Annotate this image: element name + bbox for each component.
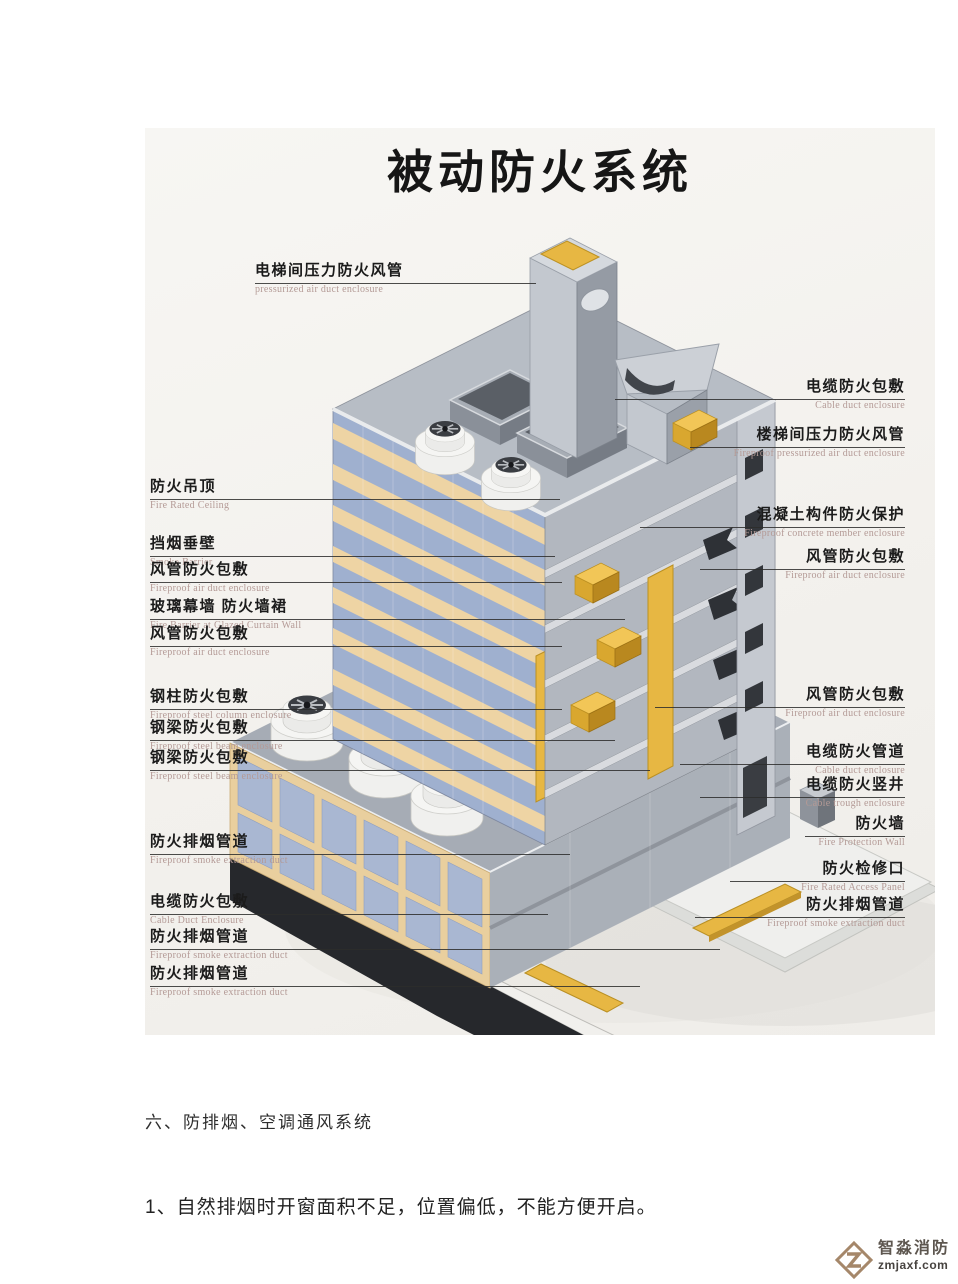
callout-label-en: Fireproof smoke extraction duct [150,950,288,961]
callout-label-en: Cable Duct Enclosure [150,915,249,926]
callout-label-en: Fireproof smoke extraction duct [150,855,288,866]
callout-label-zh: 风管防火包敷 [785,548,905,566]
callout-duct-enclosure-2: 风管防火包敷 Fireproof air duct enclosure [150,625,270,658]
callout-label-zh: 防火检修口 [801,860,905,878]
callout-label-en: Fire Rated Access Panel [801,882,905,893]
passive-fire-protection-diagram: 被动防火系统 [145,128,935,1035]
callout-duct-enclosure-right-2: 风管防火包敷 Fireproof air duct enclosure [785,686,905,719]
callout-label-en: Fireproof pressurized air duct enclosure [734,448,905,459]
callout-steel-column-enclosure: 钢柱防火包敷 Fireproof steel column enclosure [150,688,292,721]
callout-steel-beam-enclosure-1: 钢梁防火包敷 Fireproof steel beam enclosure [150,719,283,752]
callout-label-zh: 防火排烟管道 [150,965,288,983]
callout-smoke-duct-3: 防火排烟管道 Fireproof smoke extraction duct [150,965,288,998]
logo-name: 智淼消防 [878,1240,950,1258]
elevator-shaft [530,238,617,458]
callout-cable-duct-enclosure: 电缆防火包敷 Cable Duct Enclosure [150,893,249,926]
callout-label-zh: 挡烟垂壁 [150,535,216,553]
callout-label-zh: 风管防火包敷 [150,561,270,579]
section-heading: 六、防排烟、空调通风系统 [145,1108,373,1133]
callout-label-zh: 防火排烟管道 [150,833,288,851]
zm-diamond-icon [834,1240,874,1280]
logo-text: 智淼消防 zmjaxf.com [878,1240,950,1272]
callout-label-zh: 电缆防火包敷 [150,893,249,911]
callout-fire-wall: 防火墙 Fire Protection Wall [818,815,905,848]
callout-label-zh: 电缆防火竖井 [806,776,905,794]
callout-label-zh: 防火吊顶 [150,478,229,496]
callout-duct-enclosure-1: 风管防火包敷 Fireproof air duct enclosure [150,561,270,594]
callout-label-zh: 玻璃幕墙 防火墙裙 [150,598,301,616]
callout-label-en: Fire Protection Wall [818,837,905,848]
callout-label-zh: 钢梁防火包敷 [150,719,283,737]
callout-label-zh: 楼梯间压力防火风管 [734,426,905,444]
logo-site: zmjaxf.com [878,1258,950,1272]
callout-label-zh: 电缆防火包敷 [806,378,905,396]
callout-smoke-duct-1: 防火排烟管道 Fireproof smoke extraction duct [150,833,288,866]
callout-cable-fire-duct: 电缆防火管道 Cable duct enclosure [806,743,905,776]
callout-label-en: Fireproof smoke extraction duct [150,987,288,998]
callout-smoke-duct-2: 防火排烟管道 Fireproof smoke extraction duct [150,928,288,961]
callout-label-zh: 钢柱防火包敷 [150,688,292,706]
callout-label-en: Fire Rated Ceiling [150,500,229,511]
callout-label-en: Fireproof air duct enclosure [150,647,270,658]
callout-steel-beam-enclosure-2: 钢梁防火包敷 Fireproof steel beam enclosure [150,749,283,782]
section-item-1: 1、自然排烟时开窗面积不足，位置偏低，不能方便开启。 [145,1192,657,1219]
callout-label-en: Cable duct enclosure [806,400,905,411]
callout-label-zh: 风管防火包敷 [150,625,270,643]
callout-label-en: Fireproof air duct enclosure [785,570,905,581]
callout-label-zh: 电缆防火管道 [806,743,905,761]
callout-cable-enclosure-top: 电缆防火包敷 Cable duct enclosure [806,378,905,411]
callout-stair-pressurized-duct: 楼梯间压力防火风管 Fireproof pressurized air duct… [734,426,905,459]
callout-label-en: pressurized air duct enclosure [255,284,404,295]
callout-label-en: Fireproof air duct enclosure [150,583,270,594]
callout-concrete-member-protection: 混凝土构件防火保护 Fireproof concrete member encl… [744,506,905,539]
callout-label-en: Fireproof concrete member enclosure [744,528,905,539]
callout-label-en: Fireproof smoke extraction duct [767,918,905,929]
callout-label-en: Fireproof air duct enclosure [785,708,905,719]
callout-elevator-pressurized-duct: 电梯间压力防火风管 pressurized air duct enclosure [255,262,404,295]
callout-label-zh: 风管防火包敷 [785,686,905,704]
callout-label-en: Cable duct enclosure [806,765,905,776]
callout-label-zh: 防火排烟管道 [767,896,905,914]
callout-fire-rated-ceiling: 防火吊顶 Fire Rated Ceiling [150,478,229,511]
callout-label-en: Fireproof steel beam enclosure [150,771,283,782]
callout-label-zh: 防火排烟管道 [150,928,288,946]
callout-duct-enclosure-right-1: 风管防火包敷 Fireproof air duct enclosure [785,548,905,581]
callout-label-zh: 混凝土构件防火保护 [744,506,905,524]
callout-label-zh: 钢梁防火包敷 [150,749,283,767]
callout-access-panel: 防火检修口 Fire Rated Access Panel [801,860,905,893]
callout-label-zh: 防火墙 [818,815,905,833]
callout-cable-shaft: 电缆防火竖井 Cable trough enclosure [806,776,905,809]
document-page: 被动防火系统 [0,0,958,1284]
callout-label-en: Cable trough enclosure [806,798,905,809]
watermark-logo: 智淼消防 zmjaxf.com [834,1240,950,1280]
callout-smoke-duct-right: 防火排烟管道 Fireproof smoke extraction duct [767,896,905,929]
callout-label-zh: 电梯间压力防火风管 [255,262,404,280]
